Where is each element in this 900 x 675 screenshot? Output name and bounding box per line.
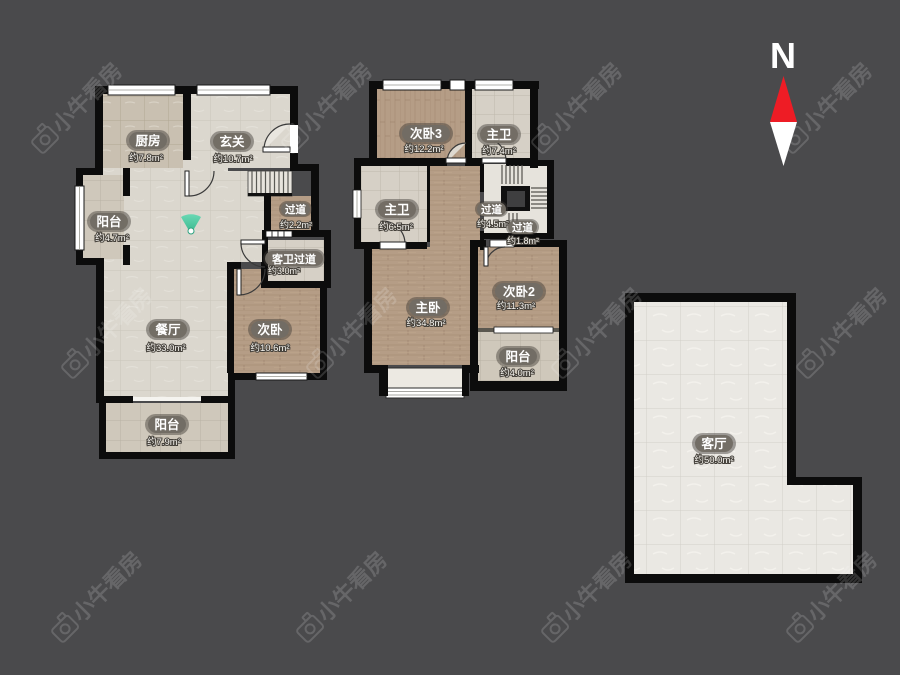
svg-text:主卧: 主卧 (415, 300, 441, 315)
svg-text:约4.0m²: 约4.0m² (500, 367, 534, 379)
svg-text:客卫过道: 客卫过道 (271, 252, 316, 266)
svg-text:约10.7m²: 约10.7m² (213, 153, 252, 165)
svg-text:约50.0m²: 约50.0m² (694, 454, 733, 466)
svg-text:约7.4m²: 约7.4m² (482, 145, 516, 157)
svg-text:阳台: 阳台 (96, 214, 121, 229)
svg-text:次卧: 次卧 (257, 322, 283, 337)
svg-text:约2.2m²: 约2.2m² (280, 219, 312, 230)
svg-text:过道: 过道 (481, 203, 502, 216)
svg-text:过道: 过道 (285, 203, 306, 216)
svg-text:主卫: 主卫 (384, 202, 410, 217)
svg-text:约33.0m²: 约33.0m² (146, 342, 185, 354)
svg-text:约6.5m²: 约6.5m² (379, 221, 413, 233)
svg-text:约7.9m²: 约7.9m² (147, 436, 181, 448)
svg-text:餐厅: 餐厅 (154, 322, 181, 337)
svg-text:约11.3m²: 约11.3m² (497, 300, 535, 312)
svg-text:主卫: 主卫 (486, 127, 512, 142)
svg-text:N: N (770, 35, 796, 76)
svg-text:约7.8m²: 约7.8m² (129, 152, 163, 164)
svg-text:约3.0m²: 约3.0m² (268, 265, 300, 276)
svg-text:约10.6m²: 约10.6m² (250, 342, 289, 354)
svg-text:约12.2m²: 约12.2m² (404, 143, 443, 155)
svg-text:约4.5m²: 约4.5m² (477, 218, 509, 229)
svg-text:约4.7m²: 约4.7m² (95, 232, 129, 244)
svg-text:玄关: 玄关 (219, 134, 245, 149)
svg-text:厨房: 厨房 (135, 133, 160, 148)
svg-text:次卧3: 次卧3 (410, 126, 442, 141)
svg-text:客厅: 客厅 (700, 436, 727, 451)
svg-text:阳台: 阳台 (505, 349, 530, 364)
svg-text:约34.8m²: 约34.8m² (406, 317, 445, 329)
svg-text:次卧2: 次卧2 (503, 284, 535, 299)
svg-text:阳台: 阳台 (154, 417, 179, 432)
svg-text:约1.8m²: 约1.8m² (507, 235, 539, 246)
svg-text:过道: 过道 (512, 221, 533, 234)
